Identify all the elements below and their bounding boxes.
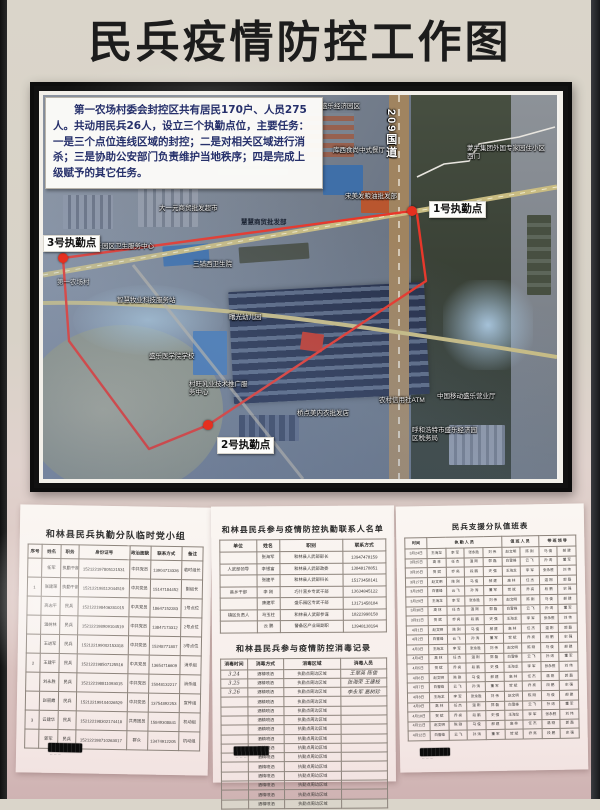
table-cell: 1 — [27, 577, 41, 596]
table-cell: 段 鹏 — [466, 663, 485, 673]
map-label: 盛乐医学院学校 — [149, 353, 205, 361]
table-cell: 白雪峰 — [429, 635, 448, 645]
duty-point-dot — [203, 420, 213, 430]
table-cell: 马 俊 — [466, 624, 485, 634]
table-cell: 云建华 — [39, 710, 59, 729]
table-header: 带 班 领 导 — [539, 535, 576, 547]
table-cell: 云 鹏 — [257, 621, 280, 633]
table-cell: 贺 斌 — [430, 711, 449, 721]
table-cell: 乔 亮 — [523, 729, 542, 739]
table-cell: 18223998158 — [343, 608, 386, 620]
table-cell: 执勤干部 — [61, 559, 79, 578]
table-cell: 酒精喷洒 — [248, 781, 285, 791]
table-header: 时间 — [405, 538, 427, 549]
table-cell: 执勤点周边区域 — [284, 725, 341, 735]
table-cell: 赵丽霞 — [39, 691, 59, 710]
table-cell: 温 刚 — [464, 557, 483, 567]
table-cell: 赵文明 — [502, 547, 521, 557]
table-cell: 高 林 — [429, 654, 448, 664]
map-label: 桥点美内衣批发店 — [297, 410, 349, 418]
table-cell: 执勤点周边区域 — [284, 678, 341, 688]
table-cell: 段 鹏 — [542, 729, 561, 739]
table-cell: 乔 亮 — [521, 585, 540, 595]
lower-road — [43, 303, 557, 357]
table-cell: 消杀组 — [180, 656, 201, 675]
table-cell — [341, 724, 388, 734]
table-cell: 酒精喷洒 — [248, 734, 285, 744]
table-cell: 乔 亮 — [522, 681, 541, 691]
table-cell: 温 刚 — [540, 623, 559, 633]
table-cell: 3月28日 — [406, 587, 428, 597]
table-cell: 马玉柱 — [257, 609, 280, 621]
table-cell: 中共党员 — [128, 598, 149, 617]
table-cell: 152122198302174418 — [76, 711, 127, 731]
table-cell: 18647152283 — [149, 598, 181, 618]
table-cell: 13948138194 — [343, 620, 386, 632]
table-cell: 4月5日 — [407, 664, 429, 674]
table-cell: 温树林 — [41, 615, 61, 634]
table-cell: 执勤点周边区域 — [284, 771, 341, 781]
table-cell: 任军 — [42, 558, 62, 577]
table-cell: 王海龙 — [502, 566, 521, 576]
table-cell: 李 军 — [447, 596, 466, 606]
map-label: 三铺西卫生院 — [193, 261, 232, 269]
table-cell: 贺 斌 — [505, 729, 524, 739]
table-cell: 13947478159 — [343, 551, 386, 563]
table-cell: 152122199104026529 — [76, 692, 127, 712]
photo-edge-right — [591, 0, 600, 799]
table-cell: 赵文明 — [430, 721, 449, 731]
table-cell: 董 军 — [484, 634, 503, 644]
table-cell — [341, 733, 388, 743]
road-209-label: 209国道 — [383, 109, 397, 159]
table-cell: 4月9日 — [408, 702, 430, 712]
table-cell: 陈 刚 — [446, 577, 465, 587]
table-cell — [222, 800, 249, 809]
table-cell: 宣传组 — [179, 694, 200, 713]
map-label: 农村信用社ATM — [379, 397, 425, 405]
table-cell: 段 鹏 — [467, 711, 486, 721]
table-cell: 152122199002153318 — [77, 635, 128, 655]
table-cell: 消杀组 — [180, 675, 201, 694]
table-cell: 巧什营乡专武干部 — [280, 586, 343, 598]
table-cell: 孙 涛 — [539, 556, 558, 566]
table-cell: 段 鹏 — [466, 615, 485, 625]
table-cell: 13848178851 — [343, 562, 386, 574]
table-cell: 郭 磊 — [560, 719, 579, 729]
table-cell: 2号点位 — [181, 618, 202, 637]
table-cell: 温 刚 — [541, 671, 560, 681]
table-cell: 孙 涛 — [465, 586, 484, 596]
table-cell: 酒精喷洒 — [248, 716, 285, 726]
satellite-map: 盛乐经济园区库西食尚中式餐厅蒙牛集团外国专家园住小区西门宋美发粮油批发部大一元商… — [43, 95, 557, 479]
table-cell: 温 刚 — [465, 605, 484, 615]
table-cell: 赵文明 — [503, 643, 522, 653]
page-title: 民兵疫情防控工作图 — [0, 6, 600, 70]
table-cell — [220, 621, 257, 633]
table-cell: 张建平 — [257, 575, 280, 587]
table-cell: 酒精喷洒 — [248, 771, 285, 781]
table-cell — [26, 672, 40, 691]
info-text: 第一农场村委会封控区共有居民170户、人员275人。共动用民兵26人，设立三个执… — [53, 103, 315, 182]
table-cell: 史 强 — [560, 680, 579, 690]
table-cell: 郭 磊 — [559, 623, 578, 633]
table-cell: 白雪峰 — [502, 557, 521, 567]
duty-point-label: 1号执勤点 — [429, 201, 486, 218]
table-cell — [25, 691, 39, 710]
table-cell: 陈 刚 — [520, 547, 539, 557]
table-cell — [340, 715, 387, 725]
table-cell: 中共党员 — [128, 636, 149, 655]
table-cell: 中共党员 — [129, 579, 150, 598]
table-cell: 4月10日 — [408, 712, 430, 722]
table-cell: 任 杰 — [446, 558, 465, 568]
table-cell: 陈 刚 — [447, 625, 466, 635]
table-cell: 云 飞 — [523, 700, 542, 710]
paper-left-title: 和林县民兵执勤分队临时党小组 — [20, 526, 212, 542]
table-cell: 王海龙 — [428, 596, 447, 606]
table-cell: 高 林 — [427, 558, 446, 568]
table-cell: 郝 建 — [486, 720, 505, 730]
table-cell — [340, 706, 387, 716]
table-cell: 15173458141 — [343, 574, 386, 586]
table-cell: 董 军 — [560, 699, 579, 709]
map-label: 呼和浩特市盛乐经济园区税务局 — [412, 427, 482, 443]
table-cell: 刘 伟 — [560, 709, 579, 719]
table-cell: 13654716609 — [148, 655, 180, 675]
table-cell: 李 军 — [447, 644, 466, 654]
table-cell: 任 杰 — [447, 606, 466, 616]
contact-list-table: 单位姓名职别联系方式张海军和林县人武部部长13947478159人武部领导李银富… — [219, 538, 387, 633]
redaction-stamp — [234, 746, 269, 755]
table-cell: 史 强 — [558, 584, 577, 594]
table-cell — [221, 781, 248, 790]
table-cell: 温 刚 — [467, 701, 486, 711]
map-label: 蒙牛集团外国专家园住小区西门 — [467, 145, 547, 161]
table-header: 职别 — [280, 539, 343, 551]
table-cell — [25, 729, 39, 748]
duty-point-dot — [407, 206, 417, 216]
table-cell — [221, 716, 248, 725]
table-cell: 3月27日 — [405, 577, 427, 587]
map-label: 曙光幼儿园 — [229, 314, 262, 322]
table-cell: 陈 刚 — [522, 643, 541, 653]
map-label: 智慧牧业科技服务站 — [117, 297, 177, 305]
table-cell: 乔 亮 — [449, 711, 468, 721]
table-cell — [341, 743, 388, 753]
table-cell: 陈 刚 — [448, 673, 467, 683]
table-cell — [221, 772, 248, 781]
table-cell: 任 杰 — [523, 719, 542, 729]
table-cell: 李 军 — [522, 662, 541, 672]
table-cell: 郝 建 — [559, 642, 578, 652]
table-header: 序号 — [28, 544, 42, 558]
table-cell: 酒精喷洒 — [247, 706, 284, 716]
table-cell: 和林县人武部政委 — [280, 563, 343, 575]
table-cell — [340, 696, 387, 706]
table-cell: 民兵 — [60, 597, 78, 616]
table-cell: 孙 涛 — [541, 652, 560, 662]
paper-mid-title2: 和林县民兵参与疫情防控消毒记录 — [212, 642, 395, 654]
table-cell: 中共党员 — [127, 674, 148, 693]
table-cell: 执勤点周边区域 — [284, 734, 341, 744]
table-cell: 陈 刚 — [523, 691, 542, 701]
table-cell: 152122198811093015 — [76, 673, 127, 693]
table-cell: 李 刚 — [257, 586, 280, 598]
table-cell: 郭 磊 — [485, 653, 504, 663]
table-cell: 13754892253 — [148, 693, 180, 713]
table-cell: 陈 刚 — [449, 721, 468, 731]
table-cell: 贺 斌 — [428, 615, 447, 625]
table-cell: 王海龙 — [429, 644, 448, 654]
table-cell — [221, 734, 248, 743]
duty-point-label: 2号执勤点 — [217, 437, 274, 454]
duty-point-label: 3号执勤点 — [43, 235, 100, 252]
table-cell: 贺 斌 — [504, 681, 523, 691]
table-cell: 陈 刚 — [521, 595, 540, 605]
paper-right-title: 民兵支援分队值班表 — [396, 519, 584, 533]
table-cell: 执勤点周边区域 — [284, 669, 341, 679]
table-cell: 刘 伟 — [483, 547, 502, 557]
table-cell: 郭 磊 — [559, 671, 578, 681]
table-cell: 共青团员 — [126, 712, 147, 731]
map-label: 中国移动盛乐营业厅 — [437, 393, 497, 401]
table-cell: 13171458184 — [343, 597, 386, 609]
table-cell: 执勤点周边区域 — [285, 780, 342, 790]
table-cell: 马 俊 — [465, 576, 484, 586]
table-cell: 张海军 — [256, 552, 279, 564]
table-cell: 云 飞 — [447, 634, 466, 644]
table-cell: 高 林 — [505, 720, 524, 730]
table-cell: 盛乐园区专武干部 — [280, 597, 343, 609]
table-cell: 温 刚 — [466, 653, 485, 663]
table-cell: 乔 亮 — [522, 633, 541, 643]
table-cell: 任 杰 — [521, 623, 540, 633]
table-cell: 执勤点周边区域 — [284, 706, 341, 716]
table-cell: 李 军 — [520, 566, 539, 576]
table-cell — [221, 725, 248, 734]
table-cell: 3月26日 — [405, 568, 427, 578]
table-cell: 白雪峰 — [504, 700, 523, 710]
table-cell: 孙 涛 — [466, 634, 485, 644]
table-cell: 张建荣 — [41, 577, 61, 596]
redaction-stamp — [420, 748, 450, 757]
table-cell: 史 强 — [486, 710, 505, 720]
table-cell: 董 军 — [485, 682, 504, 692]
table-cell: 13634845122 — [343, 585, 386, 597]
table-cell: 4月3日 — [407, 645, 429, 655]
table-cell: 王海龙 — [427, 548, 446, 558]
table-cell: 13474912205 — [147, 731, 179, 751]
table-cell: 3月25日 — [405, 558, 427, 568]
table-cell — [26, 634, 40, 653]
table-cell: 高 林 — [504, 672, 523, 682]
table-cell: 刘 伟 — [484, 595, 503, 605]
table-cell: 4月8日 — [407, 693, 429, 703]
table-cell: 高志平 — [41, 596, 61, 615]
table-row: 云 鹏警备区产业局副职13948138194 — [220, 620, 386, 633]
map-frame-inner: 盛乐经济园区库西食尚中式餐厅蒙牛集团外国专家园住小区西门宋美发粮油批发部大一元商… — [39, 91, 563, 483]
table-cell: 3月30日 — [406, 606, 428, 616]
table-header: 单位 — [220, 540, 257, 552]
table-cell: 云 飞 — [448, 682, 467, 692]
table-cell: 152122198507125516 — [77, 654, 128, 674]
table-cell — [28, 558, 42, 577]
table-cell: 酒精喷洒 — [248, 799, 285, 809]
table-cell: 史 强 — [560, 728, 579, 738]
table-cell: 民兵 — [59, 673, 77, 692]
table-cell: 4月6日 — [407, 673, 429, 683]
map-label: 宋美发粮油批发部 — [345, 193, 399, 201]
table-cell: 任 杰 — [448, 653, 467, 663]
table-cell: 孙 涛 — [541, 700, 560, 710]
map-label: 村旺乳业技术推广服务中心 — [189, 381, 253, 397]
table-cell: 152122198909104519 — [77, 616, 128, 636]
table-cell: 4月1日 — [406, 625, 428, 635]
table-cell: 15147184452 — [150, 579, 182, 599]
disinfection-record-table: 消毒时间消毒方式消毒区域消毒人员3.24酒精喷洒执勤点周边区域王翠英 陈俊3.2… — [220, 657, 388, 810]
table-cell: 高 林 — [428, 606, 447, 616]
table-cell: 云 飞 — [520, 556, 539, 566]
table-cell: 3月24日 — [405, 549, 427, 559]
table-cell: 执勤点周边区域 — [284, 743, 341, 753]
table-cell: 13847173312 — [149, 617, 181, 637]
table-cell: 4月4日 — [407, 654, 429, 664]
table-cell: 段 鹏 — [541, 681, 560, 691]
table-cell — [27, 596, 41, 615]
table-row: 酒精喷洒执勤点周边区域 — [222, 799, 388, 809]
table-cell: 温 刚 — [539, 575, 558, 585]
table-cell: 酒精喷洒 — [248, 762, 285, 772]
table-cell — [341, 761, 388, 771]
table-cell: 云 飞 — [521, 604, 540, 614]
table-cell: 中共党员 — [127, 655, 148, 674]
table-cell: 3.25 — [221, 679, 248, 688]
table-cell: 执勤点周边区域 — [284, 752, 341, 762]
table-cell: 152122198710263017 — [75, 730, 126, 750]
table-cell: 郭 磊 — [484, 605, 503, 615]
table-cell — [341, 789, 388, 799]
duty-roster-table: 时间执 勤 人 员值 班 人 员带 班 领 导3月24日王海龙李 军张永胜刘 伟… — [404, 535, 580, 742]
table-cell: 群众 — [126, 731, 147, 750]
table-cell: 贺 斌 — [427, 567, 446, 577]
info-box: 第一农场村委会封控区共有居民170户、人员275人。共动用民兵26人，设立三个执… — [45, 97, 323, 189]
table-cell: 马 俊 — [540, 594, 559, 604]
table-cell: 张海荣 王建枝 — [340, 678, 387, 688]
table-cell: 史 强 — [484, 614, 503, 624]
table-cell: 董 军 — [484, 586, 503, 596]
table-cell: 郝 建 — [483, 576, 502, 586]
table-cell: 机动组 — [179, 732, 200, 751]
table-cell: 4月11日 — [408, 721, 430, 731]
table-cell: 郝 建 — [557, 546, 576, 556]
map-board: 盛乐经济园区库西食尚中式餐厅蒙牛集团外国专家园住小区西门宋美发粮油批发部大一元商… — [30, 82, 572, 492]
table-cell: 赵文明 — [502, 595, 521, 605]
table-cell: 乔 亮 — [447, 615, 466, 625]
table-cell: 15248771807 — [149, 636, 181, 656]
table-cell — [341, 771, 388, 781]
table-cell: 孙 涛 — [540, 604, 559, 614]
table-cell: 赵文明 — [428, 577, 447, 587]
table-cell — [341, 752, 388, 762]
table-cell: 4月2日 — [406, 635, 428, 645]
table-cell: 马 俊 — [541, 690, 560, 700]
table-cell: 孙 涛 — [468, 730, 487, 740]
table-cell: 史 强 — [485, 662, 504, 672]
table-cell: 郭 磊 — [483, 557, 502, 567]
table-cell: 段 鹏 — [539, 585, 558, 595]
stamp-caption: — — — — [422, 757, 433, 760]
table-cell: 4月7日 — [407, 683, 429, 693]
table-cell: 刘 伟 — [558, 613, 577, 623]
table-cell: 马 俊 — [540, 642, 559, 652]
table-cell: 李永军 高树珍 — [340, 687, 387, 697]
table-cell: 乔 亮 — [448, 663, 467, 673]
table-cell: 贺 斌 — [429, 663, 448, 673]
table-cell: 刘 伟 — [558, 565, 577, 575]
table-cell: 乔 亮 — [446, 567, 465, 577]
table-cell: 温 刚 — [542, 719, 561, 729]
table-cell: 云 飞 — [449, 730, 468, 740]
table-cell: 警备区产业局副职 — [280, 620, 343, 632]
table-cell: 民兵 — [60, 616, 78, 635]
table-cell — [222, 790, 249, 799]
table-cell: 康建军 — [257, 598, 280, 610]
table-header: 消毒时间 — [221, 658, 248, 669]
paper-party-group: 和林县民兵执勤分队临时党小组 序号姓名职务身份证号政治面貌联系方式备注任军执勤干… — [16, 504, 213, 775]
table-header: 政治面貌 — [129, 546, 150, 560]
table-cell: 王建平 — [40, 653, 60, 672]
table-cell: 李 军 — [523, 710, 542, 720]
table-cell — [27, 615, 41, 634]
table-cell: 酒精喷洒 — [247, 678, 284, 688]
table-header: 消毒方式 — [247, 658, 284, 669]
table-cell: 任 杰 — [521, 575, 540, 585]
table-header: 联系方式 — [150, 546, 182, 561]
table-cell: 马 俊 — [539, 546, 558, 556]
table-cell: 王进军 — [40, 634, 60, 653]
table-cell: 3月29日 — [406, 597, 428, 607]
table-cell — [341, 780, 388, 790]
table-cell: 张永胜 — [541, 661, 560, 671]
table-cell: 县乡干部 — [220, 586, 257, 598]
table-cell — [221, 762, 248, 771]
table-cell: 张永胜 — [465, 596, 484, 606]
table-cell: 赵文明 — [429, 673, 448, 683]
stamp-caption: — — — — [236, 756, 247, 759]
table-cell: 刘 伟 — [485, 643, 504, 653]
table-header: 职务 — [61, 545, 79, 559]
table-cell — [341, 799, 388, 809]
table-cell: 任 杰 — [448, 701, 467, 711]
table-cell: 和林县人武部科长 — [280, 574, 343, 586]
table-cell: 段 鹏 — [540, 633, 559, 643]
table-cell: 1号点位 — [181, 599, 202, 618]
table-cell: 张永胜 — [467, 692, 486, 702]
table-cell: 郝 建 — [560, 690, 579, 700]
table-cell: 152122198112044519 — [78, 578, 129, 598]
table-cell: 贺 斌 — [502, 585, 521, 595]
table-cell: 和林县人武部部长 — [280, 551, 343, 563]
table-cell: 临时组长 — [182, 561, 203, 580]
table-cell: 2 — [26, 653, 40, 672]
table-cell: 白雪峰 — [428, 587, 447, 597]
table-cell: 赵文明 — [428, 625, 447, 635]
table-cell: 3号点位 — [180, 637, 201, 656]
table-cell — [221, 707, 248, 716]
table-cell: 民兵 — [59, 654, 77, 673]
table-cell: 张永胜 — [466, 644, 485, 654]
